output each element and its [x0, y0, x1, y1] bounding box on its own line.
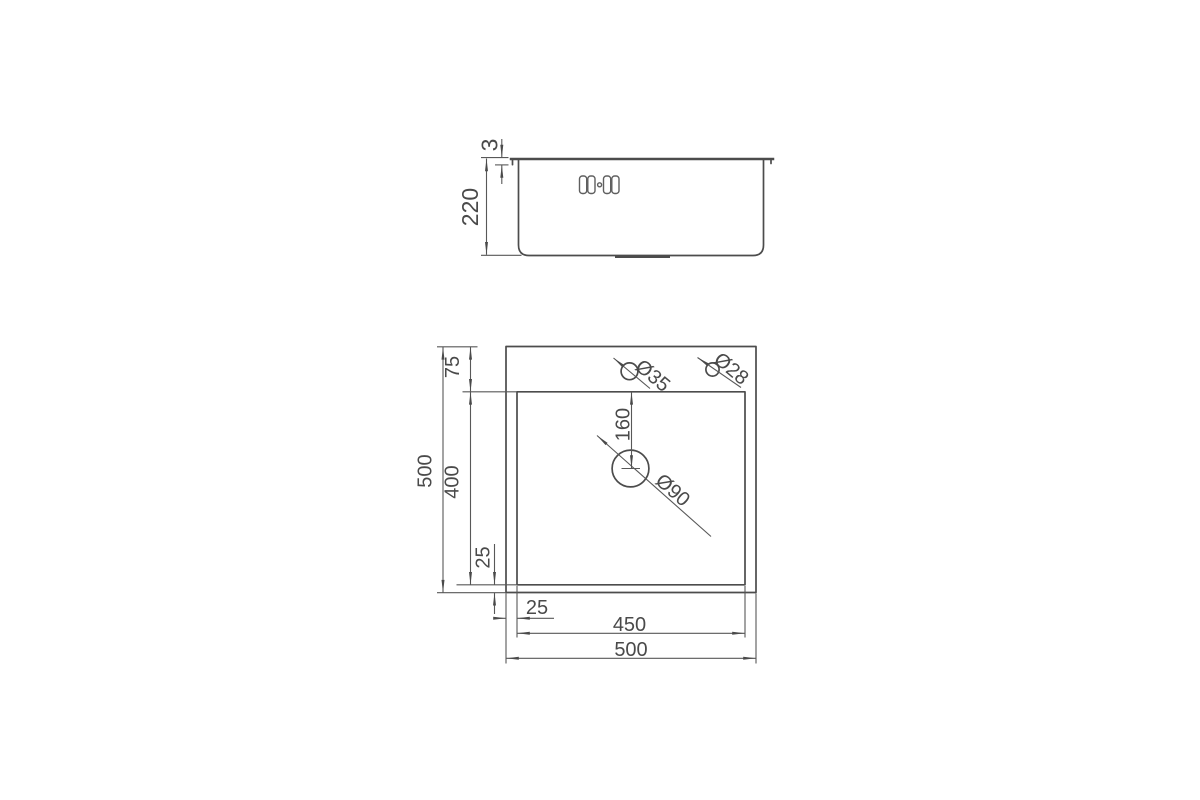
dim-top-offset-label: 75	[442, 356, 464, 378]
dim-flange-thickness: 3	[477, 139, 509, 184]
sink-technical-drawing-page: 3 220 Ø35 Ø28 Ø90	[0, 0, 1200, 800]
dim-overall-height-label: 500	[415, 454, 437, 487]
dim-flange-thickness-label: 3	[477, 139, 503, 152]
dim-bowl-bottom-offset: 25	[473, 544, 495, 614]
dim-bowl-height: 400	[442, 392, 471, 585]
logo-slot-1	[580, 176, 587, 194]
dim-overall-height-plan: 500	[415, 347, 444, 593]
dim-height-label: 220	[457, 188, 483, 226]
accessory-hole-label: Ø28	[709, 348, 752, 389]
logo-slot-4	[612, 176, 619, 194]
side-elevation-view: 3 220	[457, 139, 773, 257]
dim-overall-width-label: 500	[614, 639, 647, 661]
dim-overall-width: 500	[506, 639, 756, 661]
sink-technical-drawing: 3 220 Ø35 Ø28 Ø90	[0, 0, 1200, 800]
faucet-hole-label: Ø35	[631, 355, 674, 396]
dim-bowl-left-offset-label: 25	[526, 597, 548, 619]
dim-drain-offset-label: 160	[613, 408, 635, 441]
extension-lines	[437, 347, 756, 664]
dim-bowl-width: 450	[517, 614, 745, 636]
logo-dot	[598, 183, 602, 187]
accessory-hole-callout: Ø28	[698, 348, 753, 389]
drain-hole-label: Ø90	[651, 470, 694, 511]
dim-bowl-left-offset: 25	[496, 597, 554, 619]
dim-bowl-height-label: 400	[442, 465, 464, 498]
dim-bowl-width-label: 450	[613, 614, 646, 636]
dim-overall-height-side: 220	[457, 159, 522, 256]
brand-logo-icon	[580, 176, 620, 194]
dim-bowl-bottom-offset-label: 25	[473, 546, 495, 568]
logo-slot-3	[604, 176, 611, 194]
drain-hole-callout: Ø90	[597, 436, 711, 537]
logo-slot-2	[588, 176, 595, 194]
sink-outer-outline	[506, 347, 756, 593]
sink-body-outline	[519, 160, 764, 256]
top-plan-view: Ø35 Ø28 Ø90 160	[415, 347, 757, 664]
faucet-hole-callout: Ø35	[614, 355, 675, 396]
dim-top-offset: 75	[442, 347, 471, 392]
